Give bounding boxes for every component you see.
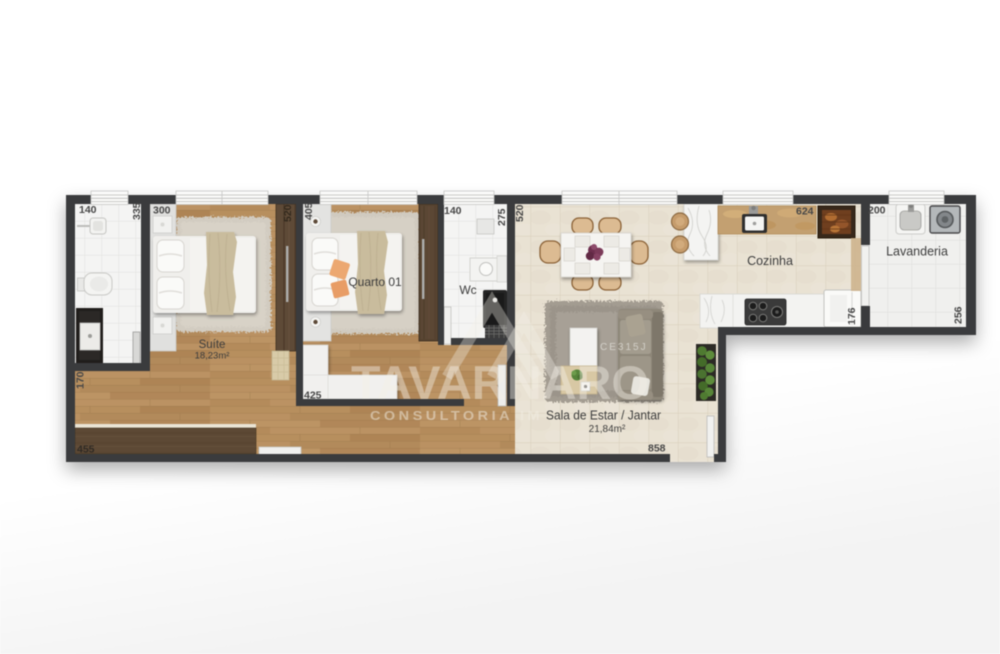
svg-text:Suíte: Suíte — [199, 339, 226, 351]
svg-text:140: 140 — [79, 204, 97, 216]
svg-text:256: 256 — [953, 306, 965, 324]
svg-text:176: 176 — [846, 307, 858, 325]
svg-text:170: 170 — [75, 371, 87, 389]
svg-text:TAVARNARO: TAVARNARO — [351, 356, 649, 409]
svg-text:CONSULTORIA IM: CONSULTORIA IM — [370, 409, 543, 423]
svg-text:455: 455 — [77, 444, 95, 456]
svg-text:300: 300 — [153, 205, 171, 217]
svg-text:520: 520 — [282, 204, 294, 222]
svg-text:140: 140 — [444, 205, 462, 217]
svg-text:425: 425 — [304, 390, 322, 402]
svg-text:18,23m²: 18,23m² — [195, 351, 230, 362]
svg-text:405: 405 — [303, 202, 315, 220]
svg-text:200: 200 — [868, 205, 886, 217]
svg-text:Lavanderia: Lavanderia — [886, 245, 948, 259]
svg-text:335: 335 — [131, 202, 143, 220]
svg-text:CE315J: CE315J — [600, 342, 648, 353]
svg-text:624: 624 — [796, 206, 814, 218]
svg-text:858: 858 — [648, 443, 666, 455]
svg-text:Quarto 01: Quarto 01 — [348, 275, 402, 289]
svg-text:21,84m²: 21,84m² — [589, 424, 626, 435]
svg-text:275: 275 — [496, 208, 508, 226]
svg-text:Cozinha: Cozinha — [747, 254, 793, 268]
svg-text:Sala de Estar / Jantar: Sala de Estar / Jantar — [546, 409, 661, 423]
svg-text:Wc: Wc — [459, 283, 476, 297]
svg-text:520: 520 — [514, 204, 526, 222]
